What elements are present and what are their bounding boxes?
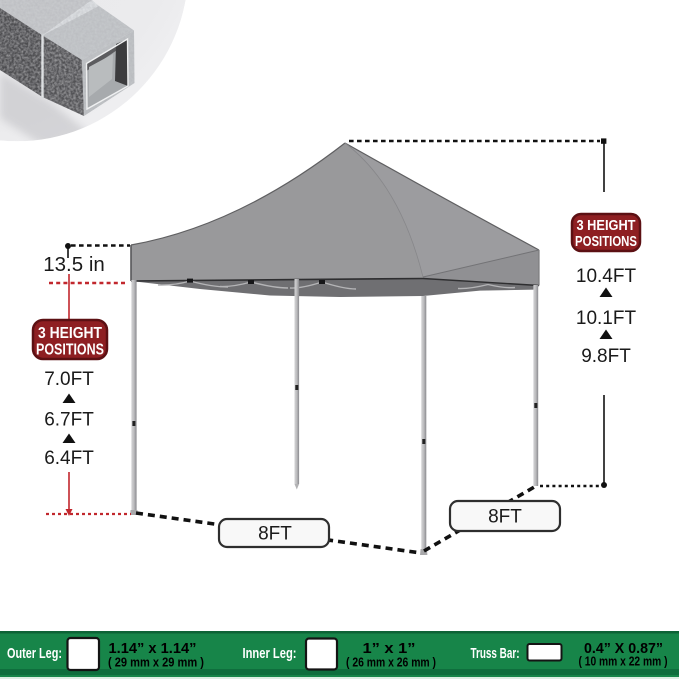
- svg-text:Truss Bar:: Truss Bar:: [471, 645, 520, 662]
- svg-text:( 26 mm x 26 mm ): ( 26 mm x 26 mm ): [346, 655, 436, 670]
- svg-text:8FT: 8FT: [488, 507, 522, 528]
- svg-text:Outer Leg:: Outer Leg:: [7, 645, 62, 662]
- svg-text:9.8FT: 9.8FT: [581, 346, 631, 367]
- svg-text:10.1FT: 10.1FT: [576, 308, 637, 329]
- svg-text:( 29 mm x 29 mm ): ( 29 mm x 29 mm ): [108, 655, 204, 670]
- svg-text:6.4FT: 6.4FT: [44, 448, 94, 469]
- svg-text:POSITIONS: POSITIONS: [36, 342, 104, 359]
- svg-text:8FT: 8FT: [258, 524, 292, 545]
- svg-text:7.0FT: 7.0FT: [44, 369, 94, 390]
- svg-text:3 HEIGHT: 3 HEIGHT: [577, 218, 636, 234]
- svg-text:6.7FT: 6.7FT: [44, 410, 94, 431]
- svg-text:10.4FT: 10.4FT: [576, 266, 637, 287]
- svg-text:POSITIONS: POSITIONS: [575, 234, 637, 250]
- svg-text:( 10 mm x 22 mm ): ( 10 mm x 22 mm ): [579, 654, 668, 669]
- svg-text:13.5 in: 13.5 in: [43, 253, 105, 276]
- svg-text:Inner Leg:: Inner Leg:: [243, 645, 297, 662]
- svg-text:3 HEIGHT: 3 HEIGHT: [38, 325, 102, 342]
